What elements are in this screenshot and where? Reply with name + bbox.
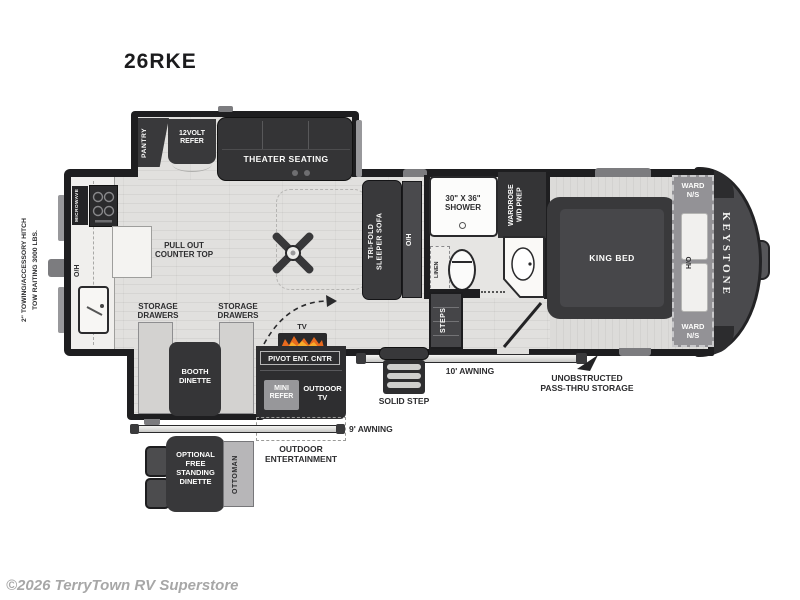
sofa-overhead-label: O/H xyxy=(406,222,418,258)
ceiling-fan-icon xyxy=(263,223,323,283)
booth-dinette-label: BOOTH DINETTE xyxy=(169,367,221,385)
brand-logo-text: KEYSTONE xyxy=(720,212,732,316)
shower-drain-icon xyxy=(459,222,466,229)
pocket-door-dashes xyxy=(481,291,505,294)
stove-burners-icon xyxy=(90,186,117,226)
bath-vanity-sink xyxy=(503,236,546,299)
theater-seat-divider-1 xyxy=(262,121,263,149)
stove-cooktop xyxy=(89,185,118,227)
theater-seating: THEATER SEATING xyxy=(217,117,353,181)
shower: 30" X 36" SHOWER xyxy=(429,176,498,237)
outdoor-entertainment-label: OUTDOOR ENTERTAINMENT xyxy=(258,444,344,464)
kitchen-sink xyxy=(78,286,109,334)
slide-side-trim xyxy=(356,120,362,177)
awning-rear-cap-left xyxy=(130,424,139,434)
theater-seating-label: THEATER SEATING xyxy=(218,154,354,164)
dinette-bench-left xyxy=(138,322,173,414)
ent-divider xyxy=(260,370,342,371)
steps-label: STEPS xyxy=(440,299,452,342)
ottoman: OTTOMAN xyxy=(223,441,254,507)
ward-ns-bottom-label: WARD N/S xyxy=(674,322,712,340)
pivot-ent-cntr: PIVOT ENT. CNTR MINI REFER OUTDOOR TV xyxy=(256,346,346,419)
booth-dinette-table: BOOTH DINETTE xyxy=(169,342,221,416)
wardrobe-wd-prep: WARDROBE W/D PREP xyxy=(498,172,546,238)
tv-label: TV xyxy=(289,323,315,332)
sofa-overhead: O/H xyxy=(402,181,422,298)
bath-vanity-icon xyxy=(503,236,546,299)
faucet-base-icon xyxy=(100,304,104,308)
pantry-label: PANTRY xyxy=(141,121,153,164)
rear-bumper xyxy=(48,259,65,277)
page-title: 26RKE xyxy=(124,50,224,75)
awning-rear-label: 9' AWNING xyxy=(349,424,405,434)
toilet-seat-line xyxy=(452,261,472,263)
pullout-counter-label: PULL OUT COUNTER TOP xyxy=(143,241,225,260)
slide-topper-bracket xyxy=(218,106,233,112)
mini-refer: MINI REFER xyxy=(264,380,299,410)
ward-ns-top-label: WARD N/S xyxy=(674,181,712,199)
underbody-bracket xyxy=(619,348,651,356)
shower-label: 30" X 36" SHOWER xyxy=(431,194,495,213)
storage-drawers-label-2: STORAGE DRAWERS xyxy=(210,302,266,321)
theater-seat-divider-2 xyxy=(308,121,309,149)
kitchen-overhead-label: O/H xyxy=(74,256,90,286)
cupholder-icon-1 xyxy=(292,170,298,176)
awning-main-cap-right xyxy=(576,353,587,364)
cupholder-icon-2 xyxy=(304,170,310,176)
microwave: MICROWAVE xyxy=(72,186,88,225)
linen-cabinet: LINEN xyxy=(430,246,450,293)
theater-seat-edge xyxy=(222,149,350,150)
bedroom-ho-label: H/O xyxy=(686,247,702,279)
refer-label: 12VOLT REFER xyxy=(168,130,216,147)
solid-step-label: SOLID STEP xyxy=(370,396,438,406)
king-bed: KING BED xyxy=(547,197,677,319)
ceiling-fan xyxy=(263,223,323,283)
sofa-label: TRI-FOLD SLEEPER SOFA xyxy=(368,187,396,295)
interior-steps: STEPS xyxy=(429,292,463,349)
wardrobe-label: WARDROBE W/D PREP xyxy=(508,176,536,234)
solid-step-frame xyxy=(383,360,425,394)
optional-dinette-table: OPTIONAL FREE STANDING DINETTE xyxy=(166,436,225,512)
mini-refer-label: MINI REFER xyxy=(264,385,299,402)
toilet xyxy=(448,249,476,291)
step-slat-3 xyxy=(387,382,421,388)
step-slat-2 xyxy=(387,373,421,379)
step-slat-1 xyxy=(387,364,421,370)
microwave-label: MICROWAVE xyxy=(75,188,85,223)
awning-rear-bar xyxy=(131,425,345,433)
trifold-sleeper-sofa: TRI-FOLD SLEEPER SOFA xyxy=(362,180,402,300)
storage-drawers-label-1: STORAGE DRAWERS xyxy=(130,302,186,321)
linen-label: LINEN xyxy=(434,253,444,286)
outdoor-tv-label: OUTDOOR TV xyxy=(301,384,344,402)
king-bed-label: KING BED xyxy=(547,253,677,263)
optional-dinette-label: OPTIONAL FREE STANDING DINETTE xyxy=(166,450,225,486)
awning-main-label: 10' AWNING xyxy=(437,366,503,376)
solid-step-top xyxy=(379,347,429,360)
pivot-ent-label: PIVOT ENT. CNTR xyxy=(260,351,340,365)
pass-thru-label: UNOBSTRUCTED PASS-THRU STORAGE xyxy=(530,373,644,393)
wardrobe-nightstand-column: WARD N/S WARD N/S H/O xyxy=(672,175,714,347)
dinette-bench-right xyxy=(219,322,254,414)
roof-bracket-2 xyxy=(595,168,651,177)
awning-main-cap-left xyxy=(356,353,366,364)
awning-rear-cap-right xyxy=(336,424,345,434)
floorplan-page: 26RKE ©2026 TerryTown RV Superstore 2" T… xyxy=(0,0,800,600)
copyright-text: ©2026 TerryTown RV Superstore xyxy=(6,577,346,594)
refer-door-arc xyxy=(172,156,212,172)
ottoman-label: OTTOMAN xyxy=(232,448,246,502)
